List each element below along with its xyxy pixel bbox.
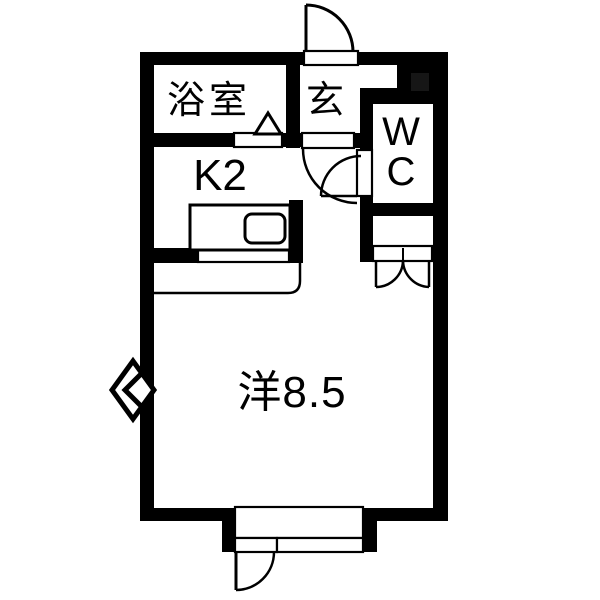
wc-label: W C <box>382 112 420 192</box>
entrance-threshold <box>304 51 358 65</box>
wall-balcony-stub-right <box>363 520 377 552</box>
balcony-threshold-main <box>235 507 363 538</box>
balcony-threshold-right <box>277 538 363 552</box>
entrance-label: 玄 <box>306 82 344 120</box>
pillar-accent-square <box>411 73 429 91</box>
kitchen-sink <box>245 214 285 243</box>
wall-top <box>140 52 448 65</box>
wc-label-line2: C <box>382 152 420 192</box>
balcony-door-arc <box>236 552 274 590</box>
wall-balcony-stub-left <box>222 520 235 552</box>
bathroom-label: 浴室 <box>167 82 251 120</box>
wc-label-line1: W <box>382 112 420 152</box>
entrance-door-arc <box>306 5 353 52</box>
closet-door-arc-left <box>376 261 403 287</box>
kitchen-label: K2 <box>193 154 247 198</box>
closet-door-arc-right <box>403 261 429 287</box>
floor-plan: 浴室 玄 W C K2 洋8.5 <box>0 0 600 600</box>
kitchen-pass-through-window <box>198 250 289 262</box>
wall-right <box>433 52 448 521</box>
wall-wc-bottom <box>360 203 433 216</box>
genkan-step-threshold <box>302 133 354 148</box>
floor-plan-drawing <box>0 0 600 600</box>
bathroom-door-triangle <box>255 113 281 134</box>
wall-left <box>140 52 154 521</box>
kitchen-area-boundary-line <box>154 263 300 293</box>
balcony-threshold-left <box>235 538 277 552</box>
main-room-label: 洋8.5 <box>237 371 346 415</box>
wc-door-arc <box>321 156 361 196</box>
